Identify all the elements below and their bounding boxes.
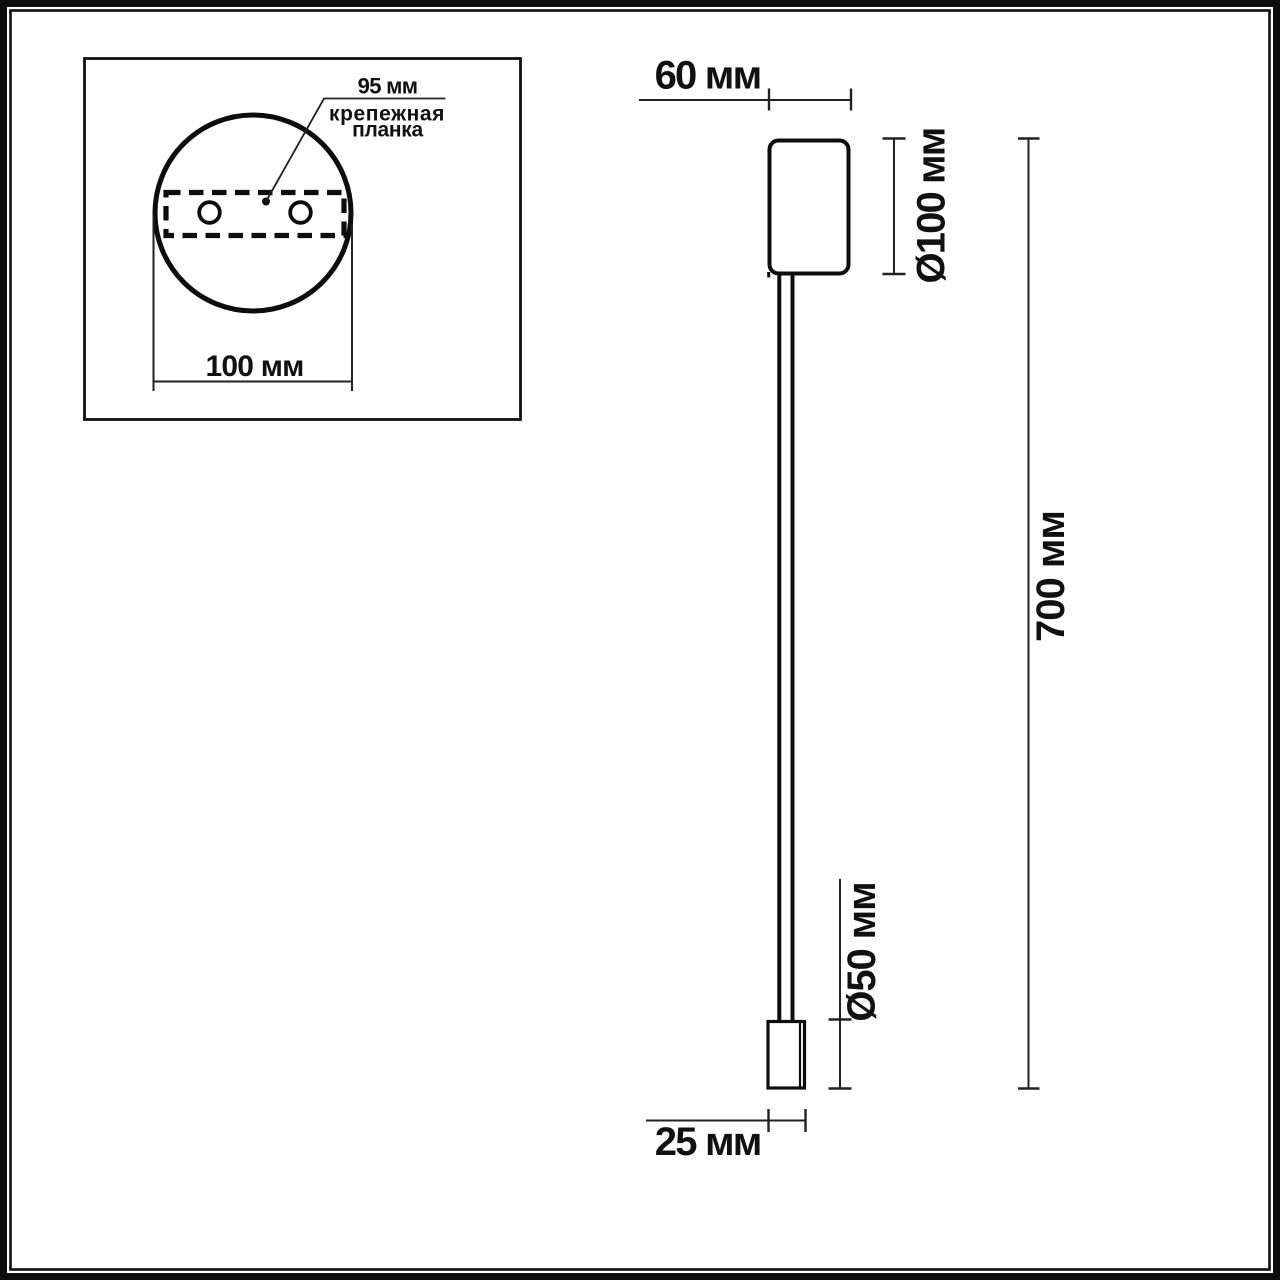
svg-text:700 мм: 700 мм xyxy=(1029,511,1073,642)
svg-text:планка: планка xyxy=(352,119,423,142)
svg-text:95 мм: 95 мм xyxy=(358,74,418,99)
svg-text:25 мм: 25 мм xyxy=(655,1120,761,1164)
svg-text:100 мм: 100 мм xyxy=(206,350,304,383)
svg-text:60 мм: 60 мм xyxy=(655,54,761,98)
svg-text:Ø50 мм: Ø50 мм xyxy=(840,882,884,1021)
svg-text:Ø100 мм: Ø100 мм xyxy=(910,129,954,284)
